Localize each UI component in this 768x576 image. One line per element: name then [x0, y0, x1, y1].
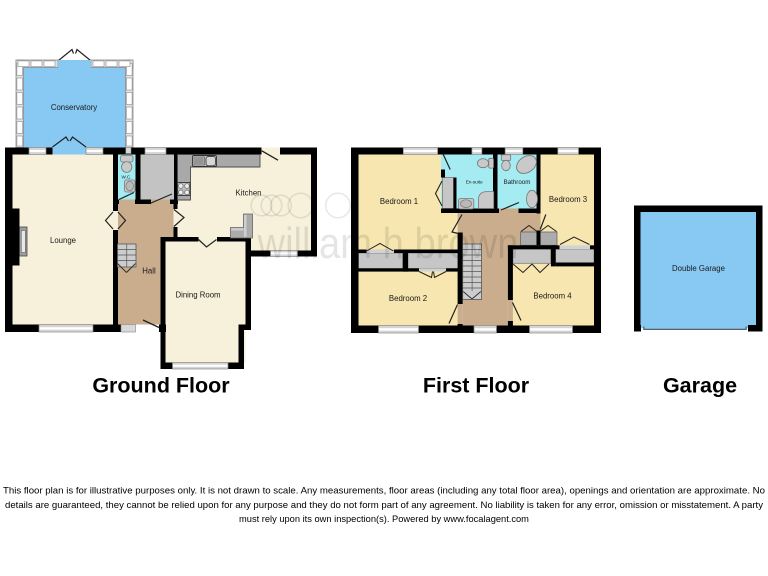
svg-text:Bathroom: Bathroom [504, 179, 531, 186]
svg-text:must rely upon its own inspect: must rely upon its own inspection(s). Po… [239, 514, 529, 524]
svg-text:Bedroom 4: Bedroom 4 [533, 292, 572, 301]
svg-text:Double Garage: Double Garage [672, 264, 725, 273]
svg-text:Conservatory: Conservatory [51, 103, 97, 112]
svg-text:Ground Floor: Ground Floor [92, 374, 230, 398]
svg-text:Bedroom 2: Bedroom 2 [389, 294, 427, 303]
svg-text:Lounge: Lounge [50, 236, 76, 245]
svg-text:Garage: Garage [663, 374, 737, 398]
svg-text:details are guaranteed, they c: details are guaranteed, they cannot be r… [5, 500, 763, 510]
svg-text:Hall: Hall [142, 267, 156, 276]
svg-text:Bedroom 3: Bedroom 3 [549, 195, 587, 204]
svg-text:This floor plan is for illustr: This floor plan is for illustrative purp… [3, 486, 765, 496]
svg-text:First Floor: First Floor [423, 374, 530, 398]
svg-text:Dining Room: Dining Room [175, 291, 220, 300]
svg-text:W.C.: W.C. [122, 175, 132, 180]
svg-text:En-suite: En-suite [466, 180, 483, 185]
svg-text:Bedroom 1: Bedroom 1 [380, 197, 418, 206]
svg-text:william h brown: william h brown [257, 219, 519, 268]
